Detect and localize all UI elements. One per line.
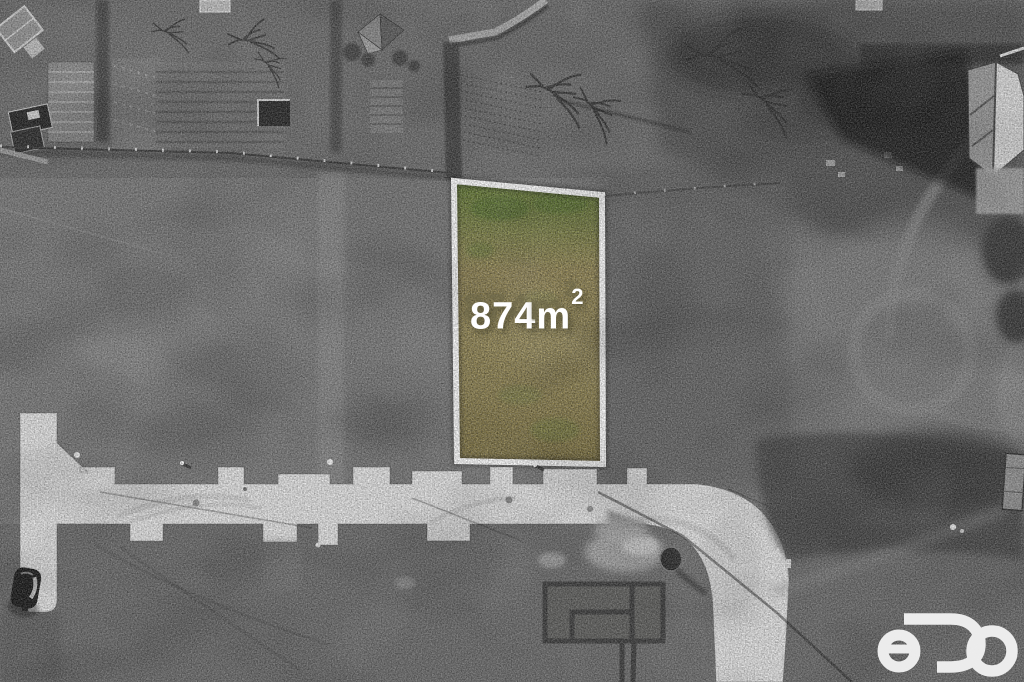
plot-area-label: 874m2: [470, 297, 583, 336]
area-exponent: 2: [571, 284, 583, 309]
photo-scene: [0, 0, 1024, 682]
grain-overlay: [0, 0, 1024, 682]
aerial-photo: 874m2: [0, 0, 1024, 682]
area-unit: m: [536, 296, 571, 338]
area-value: 874: [470, 296, 536, 338]
edo-logo: [874, 604, 1024, 680]
